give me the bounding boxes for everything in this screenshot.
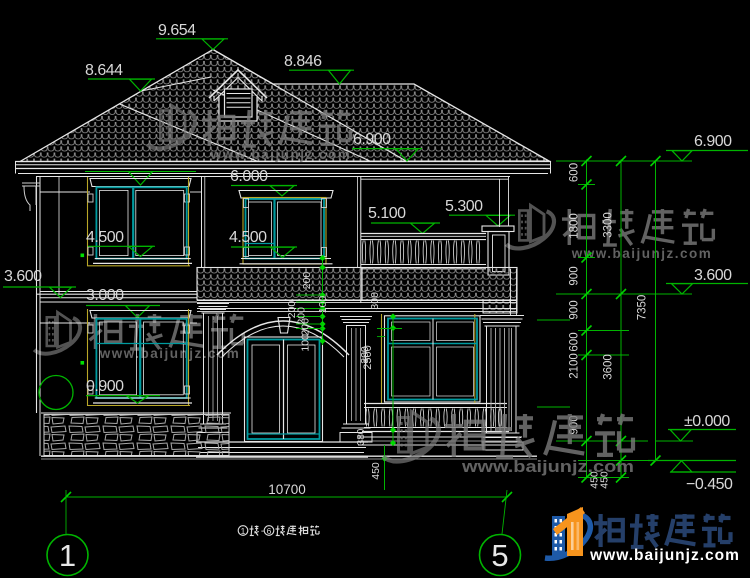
svg-text:1: 1 bbox=[59, 538, 76, 573]
svg-text:3.600: 3.600 bbox=[4, 268, 42, 285]
svg-text:6: 6 bbox=[267, 526, 272, 536]
svg-text:6.900: 6.900 bbox=[353, 131, 391, 148]
svg-text:900: 900 bbox=[569, 266, 581, 285]
svg-text:www.baijunjz.com: www.baijunjz.com bbox=[571, 246, 713, 261]
svg-text:200: 200 bbox=[301, 272, 313, 290]
svg-text:6.900: 6.900 bbox=[694, 133, 732, 150]
svg-text:www.baijunjz.com: www.baijunjz.com bbox=[210, 147, 352, 162]
svg-text:1: 1 bbox=[241, 526, 246, 536]
svg-text:600: 600 bbox=[569, 332, 581, 351]
svg-text:3.600: 3.600 bbox=[694, 267, 732, 284]
svg-text:5: 5 bbox=[491, 538, 508, 573]
svg-text:10700: 10700 bbox=[268, 482, 306, 497]
svg-text:±0.000: ±0.000 bbox=[684, 413, 730, 430]
svg-text:300: 300 bbox=[369, 292, 381, 310]
svg-text:4.500: 4.500 bbox=[229, 229, 267, 246]
svg-text:4.500: 4.500 bbox=[86, 229, 124, 246]
svg-text:100: 100 bbox=[317, 296, 329, 314]
svg-text:8.846: 8.846 bbox=[284, 53, 322, 70]
svg-text:3.000: 3.000 bbox=[86, 287, 124, 304]
svg-text:1800: 1800 bbox=[569, 213, 581, 239]
svg-text:www.baijunjz.com: www.baijunjz.com bbox=[589, 547, 740, 564]
svg-text:www.baijunjz.com: www.baijunjz.com bbox=[461, 457, 634, 476]
svg-text:2100: 2100 bbox=[569, 353, 581, 379]
svg-text:-: - bbox=[261, 526, 264, 537]
svg-text:5.300: 5.300 bbox=[445, 198, 483, 215]
svg-text:3300: 3300 bbox=[603, 212, 615, 238]
svg-text:7350: 7350 bbox=[637, 295, 649, 321]
svg-text:2500: 2500 bbox=[362, 345, 374, 369]
svg-text:−0.450: −0.450 bbox=[686, 476, 733, 493]
svg-text:900: 900 bbox=[569, 300, 581, 319]
svg-text:380: 380 bbox=[356, 428, 367, 445]
svg-text:100: 100 bbox=[300, 334, 312, 352]
svg-text:8.644: 8.644 bbox=[85, 62, 123, 79]
svg-text:3600: 3600 bbox=[603, 354, 615, 380]
svg-text:450: 450 bbox=[370, 462, 382, 480]
svg-text:5.100: 5.100 bbox=[368, 205, 406, 222]
svg-text:200: 200 bbox=[300, 318, 312, 336]
svg-text:600: 600 bbox=[569, 163, 581, 182]
svg-text:9.654: 9.654 bbox=[158, 22, 196, 39]
svg-text:0.900: 0.900 bbox=[86, 378, 124, 395]
svg-text:6.000: 6.000 bbox=[230, 168, 268, 185]
